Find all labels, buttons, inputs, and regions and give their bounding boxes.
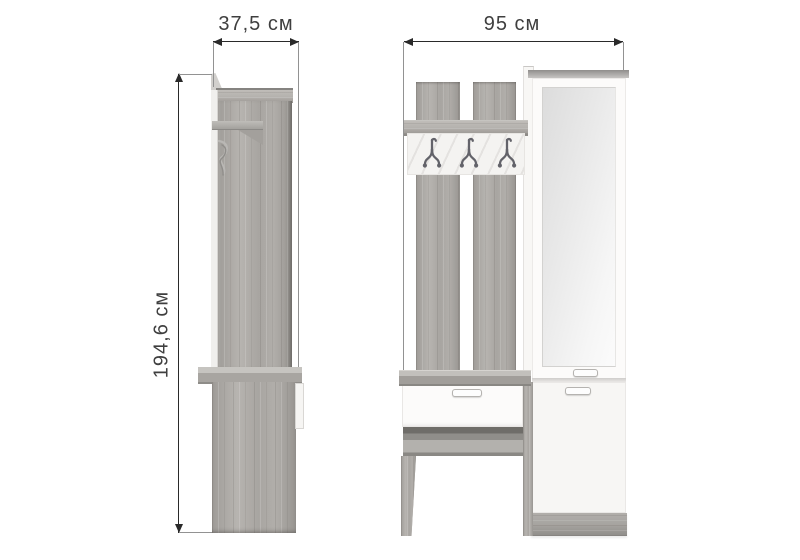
extension-line (403, 42, 404, 370)
divider-panel (523, 382, 533, 536)
arrowhead-left-icon (213, 38, 222, 46)
side-width-label: 37,5 см (196, 13, 316, 36)
side-base-cabinet (212, 382, 296, 533)
coat-hook-icon (458, 137, 480, 175)
front-bench-top (399, 370, 531, 386)
extension-line (298, 42, 299, 367)
side-width-arrow-line (213, 41, 299, 42)
arrowhead-right-icon (614, 38, 623, 46)
side-drawer-edge (295, 383, 304, 429)
front-width-label: 95 см (452, 13, 572, 36)
lower-door-handle (565, 387, 591, 395)
cabinet-lower-door (532, 382, 626, 513)
mirror (542, 87, 616, 367)
coat-hook-icon (421, 137, 443, 175)
extension-line (179, 74, 212, 75)
side-shelf-profile (212, 121, 263, 130)
extension-line (213, 42, 214, 87)
height-label: 194,6 см (151, 255, 174, 415)
cabinet-top-board (528, 70, 629, 78)
extension-line (623, 42, 624, 70)
product-dimension-diagram: 37,5 см 95 см 194,6 см (0, 0, 800, 560)
drawer-handle (452, 389, 482, 397)
arrowhead-left-icon (404, 38, 413, 46)
front-width-arrow-line (404, 41, 623, 42)
front-leg-left (401, 456, 416, 536)
extension-line (179, 532, 212, 533)
mirror-door-handle (573, 369, 598, 377)
coat-hook-icon (496, 137, 518, 175)
side-front-edge (211, 90, 218, 368)
open-niche (403, 427, 523, 456)
cabinet-plinth (531, 513, 627, 536)
height-arrow-line (178, 74, 179, 533)
hook-profile-icon (214, 139, 238, 185)
